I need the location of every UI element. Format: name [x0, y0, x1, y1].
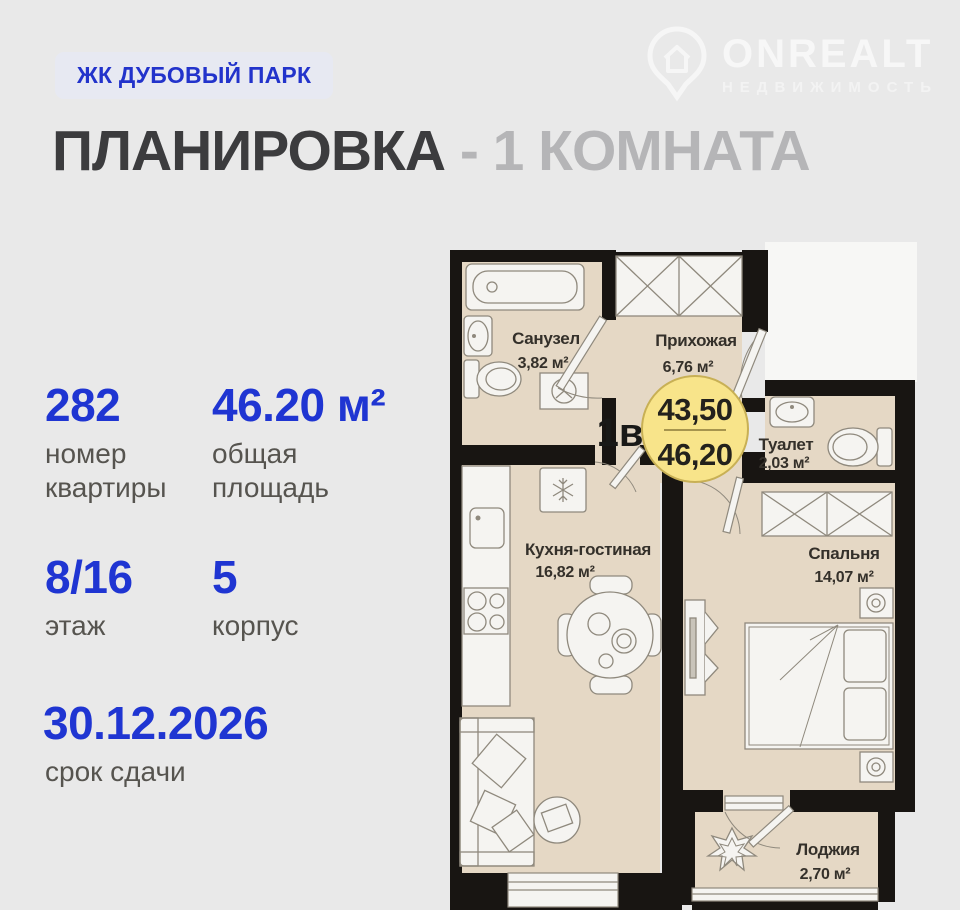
floorplan: Санузел 3,82 м² Прихожая 6,76 м² Туалет …	[440, 240, 920, 910]
kitchen-window	[508, 873, 618, 907]
loggia-step	[725, 796, 783, 810]
apartment-number-label: номер квартиры	[45, 437, 167, 505]
room-area-toilet: 2,03 м²	[759, 455, 810, 472]
fridge	[540, 468, 586, 512]
total-area-badge-value: 46,20	[657, 437, 732, 472]
sofa	[460, 718, 534, 866]
stove	[464, 588, 508, 634]
area-badge: 43,50 46,20	[642, 376, 748, 482]
pouf-rug	[534, 797, 580, 843]
total-area-value: 46.20 м²	[212, 378, 385, 432]
living-area-value: 43,50	[657, 392, 732, 427]
unit-label: 1в	[597, 411, 644, 455]
bedroom-wardrobe	[762, 492, 892, 536]
toilet-sink	[770, 397, 814, 427]
location-pin-icon	[644, 26, 710, 102]
outside-area	[765, 242, 917, 382]
bathroom-toilet	[464, 360, 521, 398]
bathroom-sink	[464, 316, 492, 356]
room-label-bathroom: Санузел	[512, 329, 580, 348]
hallway-closet	[616, 256, 742, 316]
page-title: ПЛАНИРОВКА - 1 КОМНАТА	[52, 118, 810, 184]
room-label-hallway: Прихожая	[655, 331, 736, 350]
completion-date-label: срок сдачи	[45, 755, 186, 789]
room-area-kitchen: 16,82 м²	[535, 564, 594, 581]
room-area-loggia: 2,70 м²	[800, 866, 851, 883]
poster: ЖК ДУБОВЫЙ ПАРК ПЛАНИРОВКА - 1 КОМНАТА O…	[0, 0, 960, 910]
total-area-label: общая площадь	[212, 437, 329, 505]
complex-name-badge: ЖК ДУБОВЫЙ ПАРК	[55, 52, 333, 99]
room-label-kitchen: Кухня-гостиная	[525, 540, 651, 559]
logo-subtitle: НЕДВИЖИМОСТЬ	[722, 79, 938, 96]
completion-date-value: 30.12.2026	[43, 696, 268, 750]
onrealt-watermark: ONREALT НЕДВИЖИМОСТЬ	[644, 26, 938, 102]
bed	[745, 623, 893, 749]
building-value: 5	[212, 550, 237, 604]
room-area-hallway: 6,76 м²	[663, 359, 714, 376]
floor-value: 8/16	[45, 550, 133, 604]
bathtub	[466, 264, 584, 310]
room-area-bedroom: 14,07 м²	[814, 569, 873, 586]
page-title-main: ПЛАНИРОВКА	[52, 119, 445, 183]
toilet-wc	[828, 428, 892, 466]
nightstand-bottom	[860, 752, 893, 782]
room-area-bathroom: 3,82 м²	[518, 355, 569, 372]
kitchen-counter	[462, 466, 510, 706]
loggia-glazing	[692, 888, 878, 901]
room-label-toilet: Туалет	[759, 435, 814, 454]
apartment-number-value: 282	[45, 378, 120, 432]
logo-name: ONREALT	[722, 32, 938, 77]
room-label-bedroom: Спальня	[808, 544, 879, 563]
building-label: корпус	[212, 609, 299, 643]
floor-label: этаж	[45, 609, 105, 643]
room-label-loggia: Лоджия	[796, 840, 860, 859]
nightstand-top	[860, 588, 893, 618]
